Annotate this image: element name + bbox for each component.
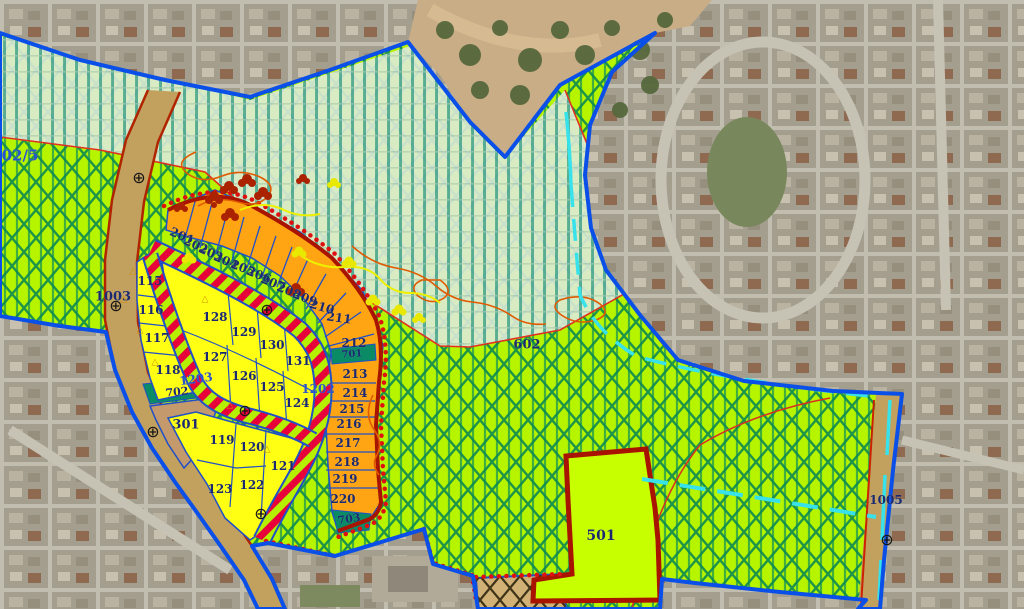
- zoning-map: 02/5100310051202120360250130170170270320…: [0, 0, 1024, 609]
- map-canvas[interactable]: [0, 0, 1024, 609]
- neighborhood-park: [707, 117, 787, 227]
- sports-field: [300, 585, 360, 607]
